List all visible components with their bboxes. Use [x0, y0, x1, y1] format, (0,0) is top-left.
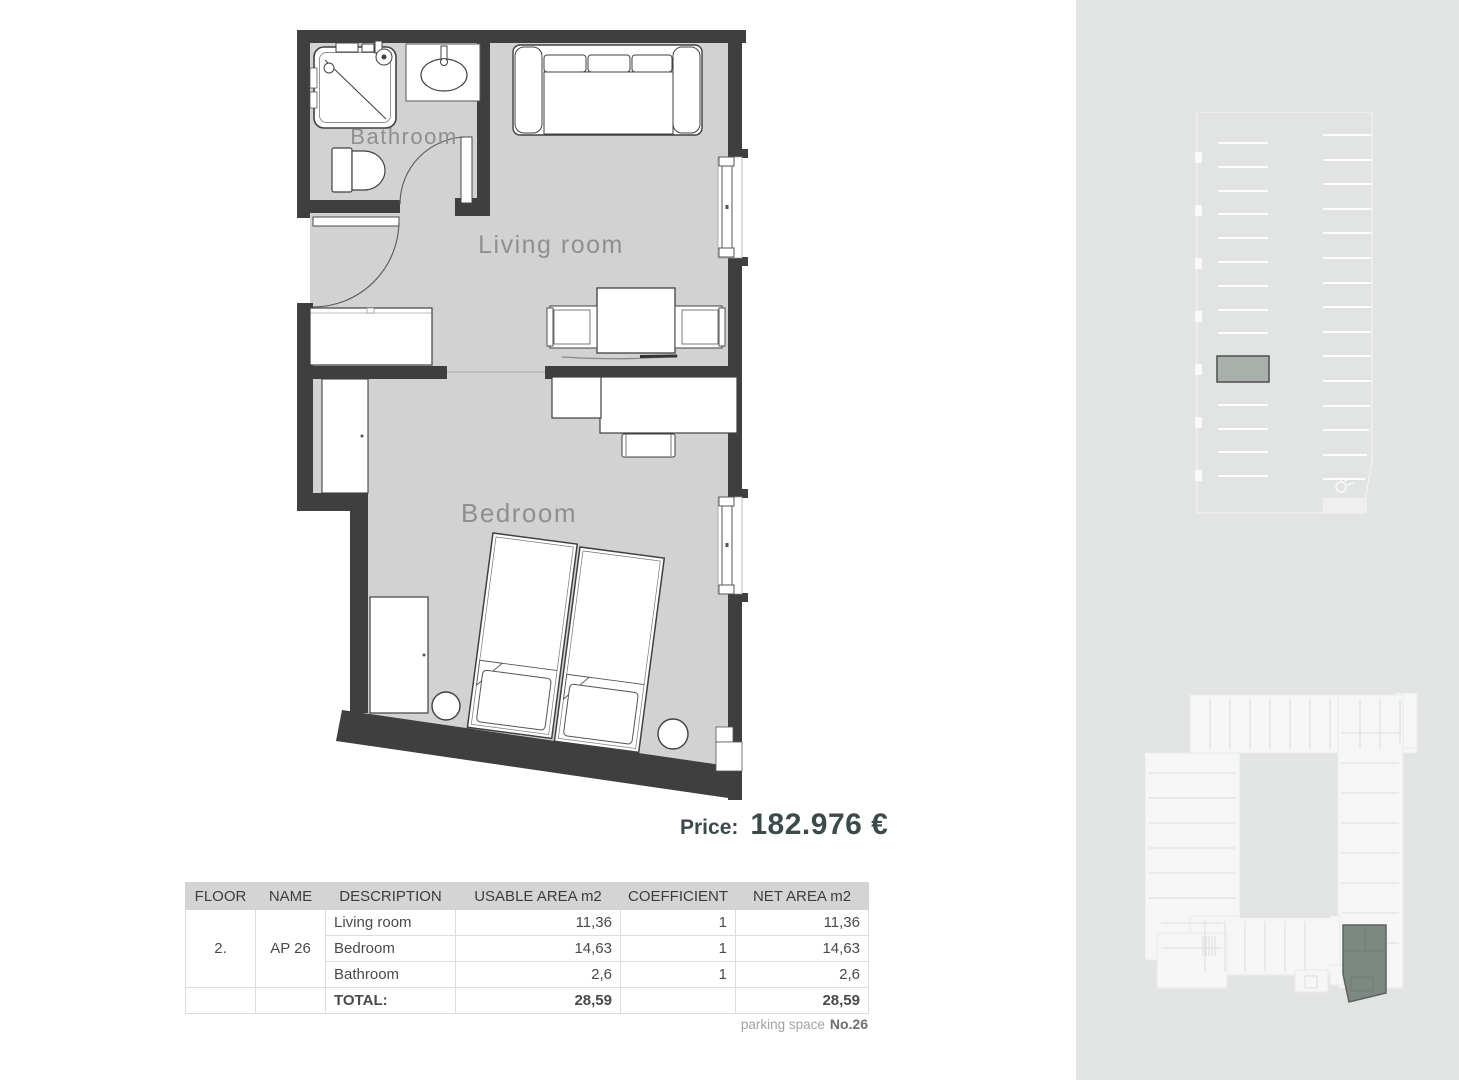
wall-top [297, 30, 746, 43]
usable-cell: 11,36 [456, 910, 621, 936]
side-panel [1076, 0, 1459, 1080]
price-row: Price: 182.976 € [680, 808, 888, 842]
coefficient-cell: 1 [621, 962, 736, 988]
garage-entry-icon [1336, 478, 1355, 492]
parking-stalls-right [1323, 135, 1371, 479]
net-cell: 11,36 [736, 910, 869, 936]
wall-bathroom-south [297, 200, 400, 213]
usable-cell: 2,6 [456, 962, 621, 988]
empty-cell [256, 988, 326, 1014]
floor-cell: 2. [186, 910, 256, 988]
coefficient-cell: 1 [621, 910, 736, 936]
parking-note: parking spaceNo.26 [185, 1016, 868, 1032]
wall-left-jog [297, 493, 368, 511]
empty-cell [621, 988, 736, 1014]
area-table: FLOOR NAME DESCRIPTION USABLE AREA m2 CO… [185, 882, 869, 1014]
page: Bathroom Living room Bedroom Price: 182.… [0, 0, 1459, 1080]
wardrobe-bedroom [370, 597, 428, 713]
shower [314, 41, 396, 128]
parking-note-label: parking space [741, 1017, 825, 1032]
stool-right [658, 719, 688, 749]
window-stub [734, 149, 748, 158]
desk-chair [622, 434, 675, 457]
room-label-bathroom: Bathroom [350, 124, 457, 149]
total-label-cell: TOTAL: [326, 988, 456, 1014]
toilet [332, 148, 385, 192]
price-label: Price: [680, 816, 738, 840]
wall-left-lower [350, 511, 368, 713]
sofa [513, 45, 702, 135]
highlighted-unit [1343, 925, 1386, 1002]
wall-divider-left [297, 366, 447, 379]
table-row: 2. AP 26 Living room 11,36 1 11,36 [186, 910, 869, 936]
price-value: 182.976 € [750, 808, 888, 842]
bathroom-wall-accessory [310, 68, 317, 108]
description-cell: Bathroom [326, 962, 456, 988]
header-floor: FLOOR [186, 883, 256, 910]
name-cell: AP 26 [256, 910, 326, 988]
building-courtyard [1240, 763, 1330, 918]
parking-note-number: No.26 [830, 1016, 868, 1032]
table-total-row: TOTAL: 28,59 28,59 [186, 988, 869, 1014]
description-cell: Living room [326, 910, 456, 936]
net-cell: 14,63 [736, 936, 869, 962]
window-bedroom [718, 497, 742, 594]
parking-map [1195, 112, 1375, 514]
stool-left [432, 692, 460, 720]
header-name: NAME [256, 883, 326, 910]
dining-chair-left [547, 306, 597, 348]
wardrobe-tall [322, 379, 368, 493]
building-overview [1145, 693, 1425, 1013]
coefficient-cell: 1 [621, 936, 736, 962]
parking-pillars [1195, 152, 1202, 481]
header-usable-area: USABLE AREA m2 [456, 883, 621, 910]
room-label-living-room: Living room [478, 231, 624, 259]
net-cell: 2,6 [736, 962, 869, 988]
highlighted-parking-stall [1217, 356, 1269, 382]
usable-cell: 14,63 [456, 936, 621, 962]
unit-side-notch [1330, 965, 1343, 985]
window-stub [734, 489, 748, 498]
wall-right-upper [728, 43, 742, 158]
hall-cabinet [310, 308, 432, 365]
sink [406, 44, 480, 101]
header-net-area: NET AREA m2 [736, 883, 869, 910]
window-living-room [718, 157, 742, 258]
table-header-row: FLOOR NAME DESCRIPTION USABLE AREA m2 CO… [186, 883, 869, 910]
description-cell: Bedroom [326, 936, 456, 962]
garage-ramp [1323, 498, 1367, 513]
dining-chair-right [675, 306, 725, 348]
window-stub [734, 257, 748, 266]
room-label-bedroom: Bedroom [461, 498, 577, 528]
dining-table [597, 288, 675, 353]
wall-left-upper [297, 30, 310, 218]
total-net-cell: 28,59 [736, 988, 869, 1014]
total-usable-cell: 28,59 [456, 988, 621, 1014]
header-description: DESCRIPTION [326, 883, 456, 910]
building-entrance-stub [1295, 970, 1328, 992]
parking-stalls-left [1218, 143, 1268, 476]
empty-cell [186, 988, 256, 1014]
header-coefficient: COEFFICIENT [621, 883, 736, 910]
